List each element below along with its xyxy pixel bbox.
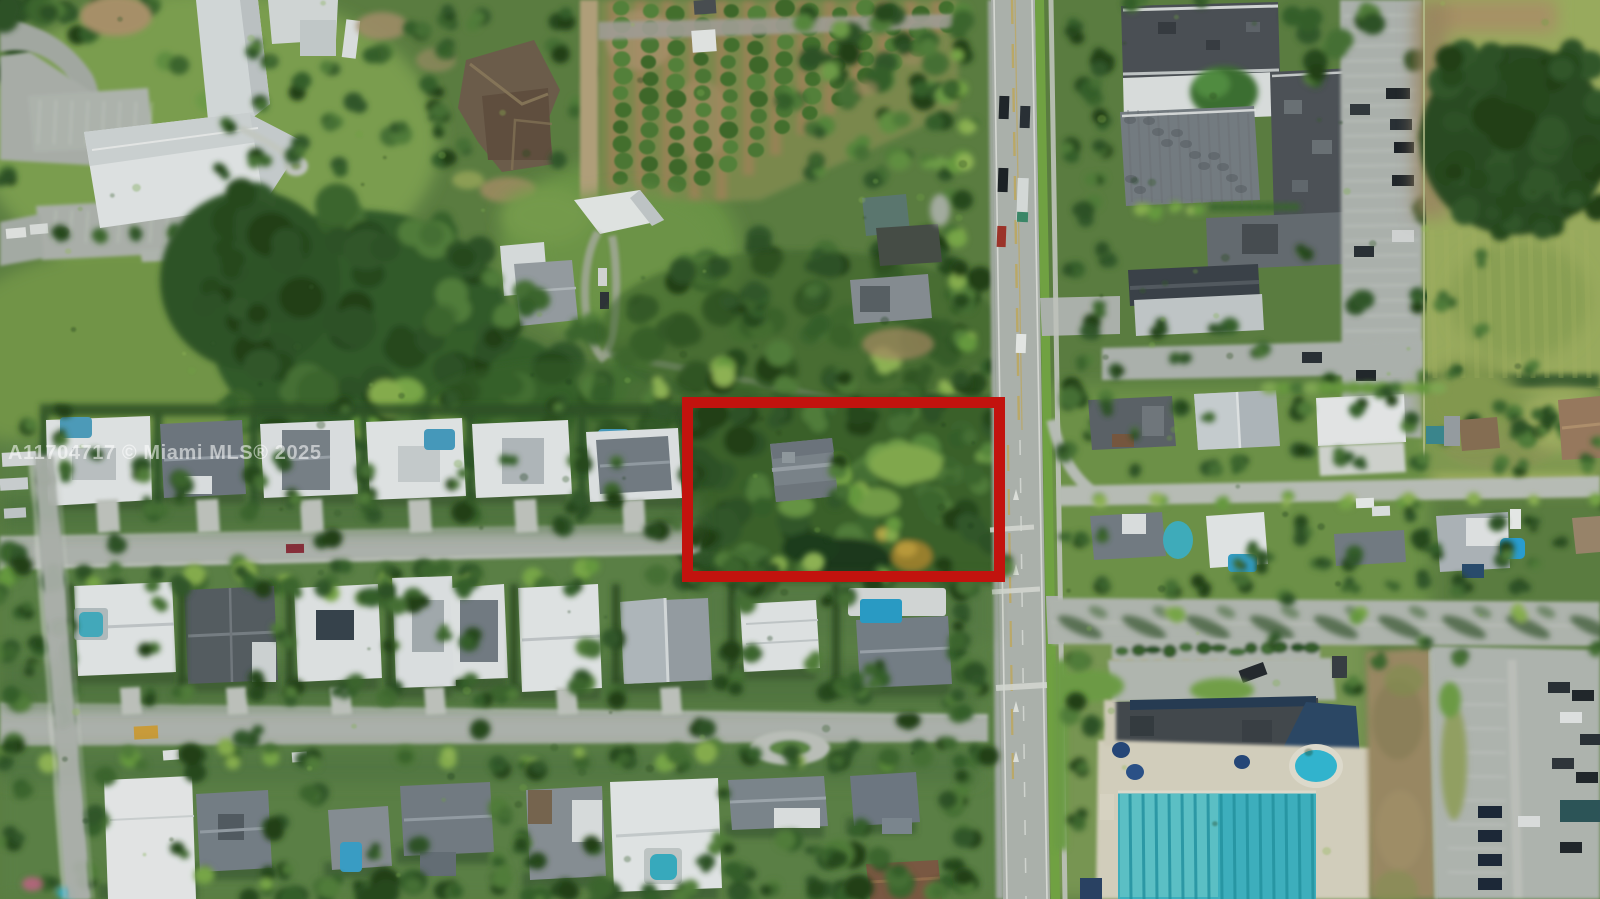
svg-text:A11704717 © Miami MLS® 2025: A11704717 © Miami MLS® 2025 xyxy=(8,442,322,464)
